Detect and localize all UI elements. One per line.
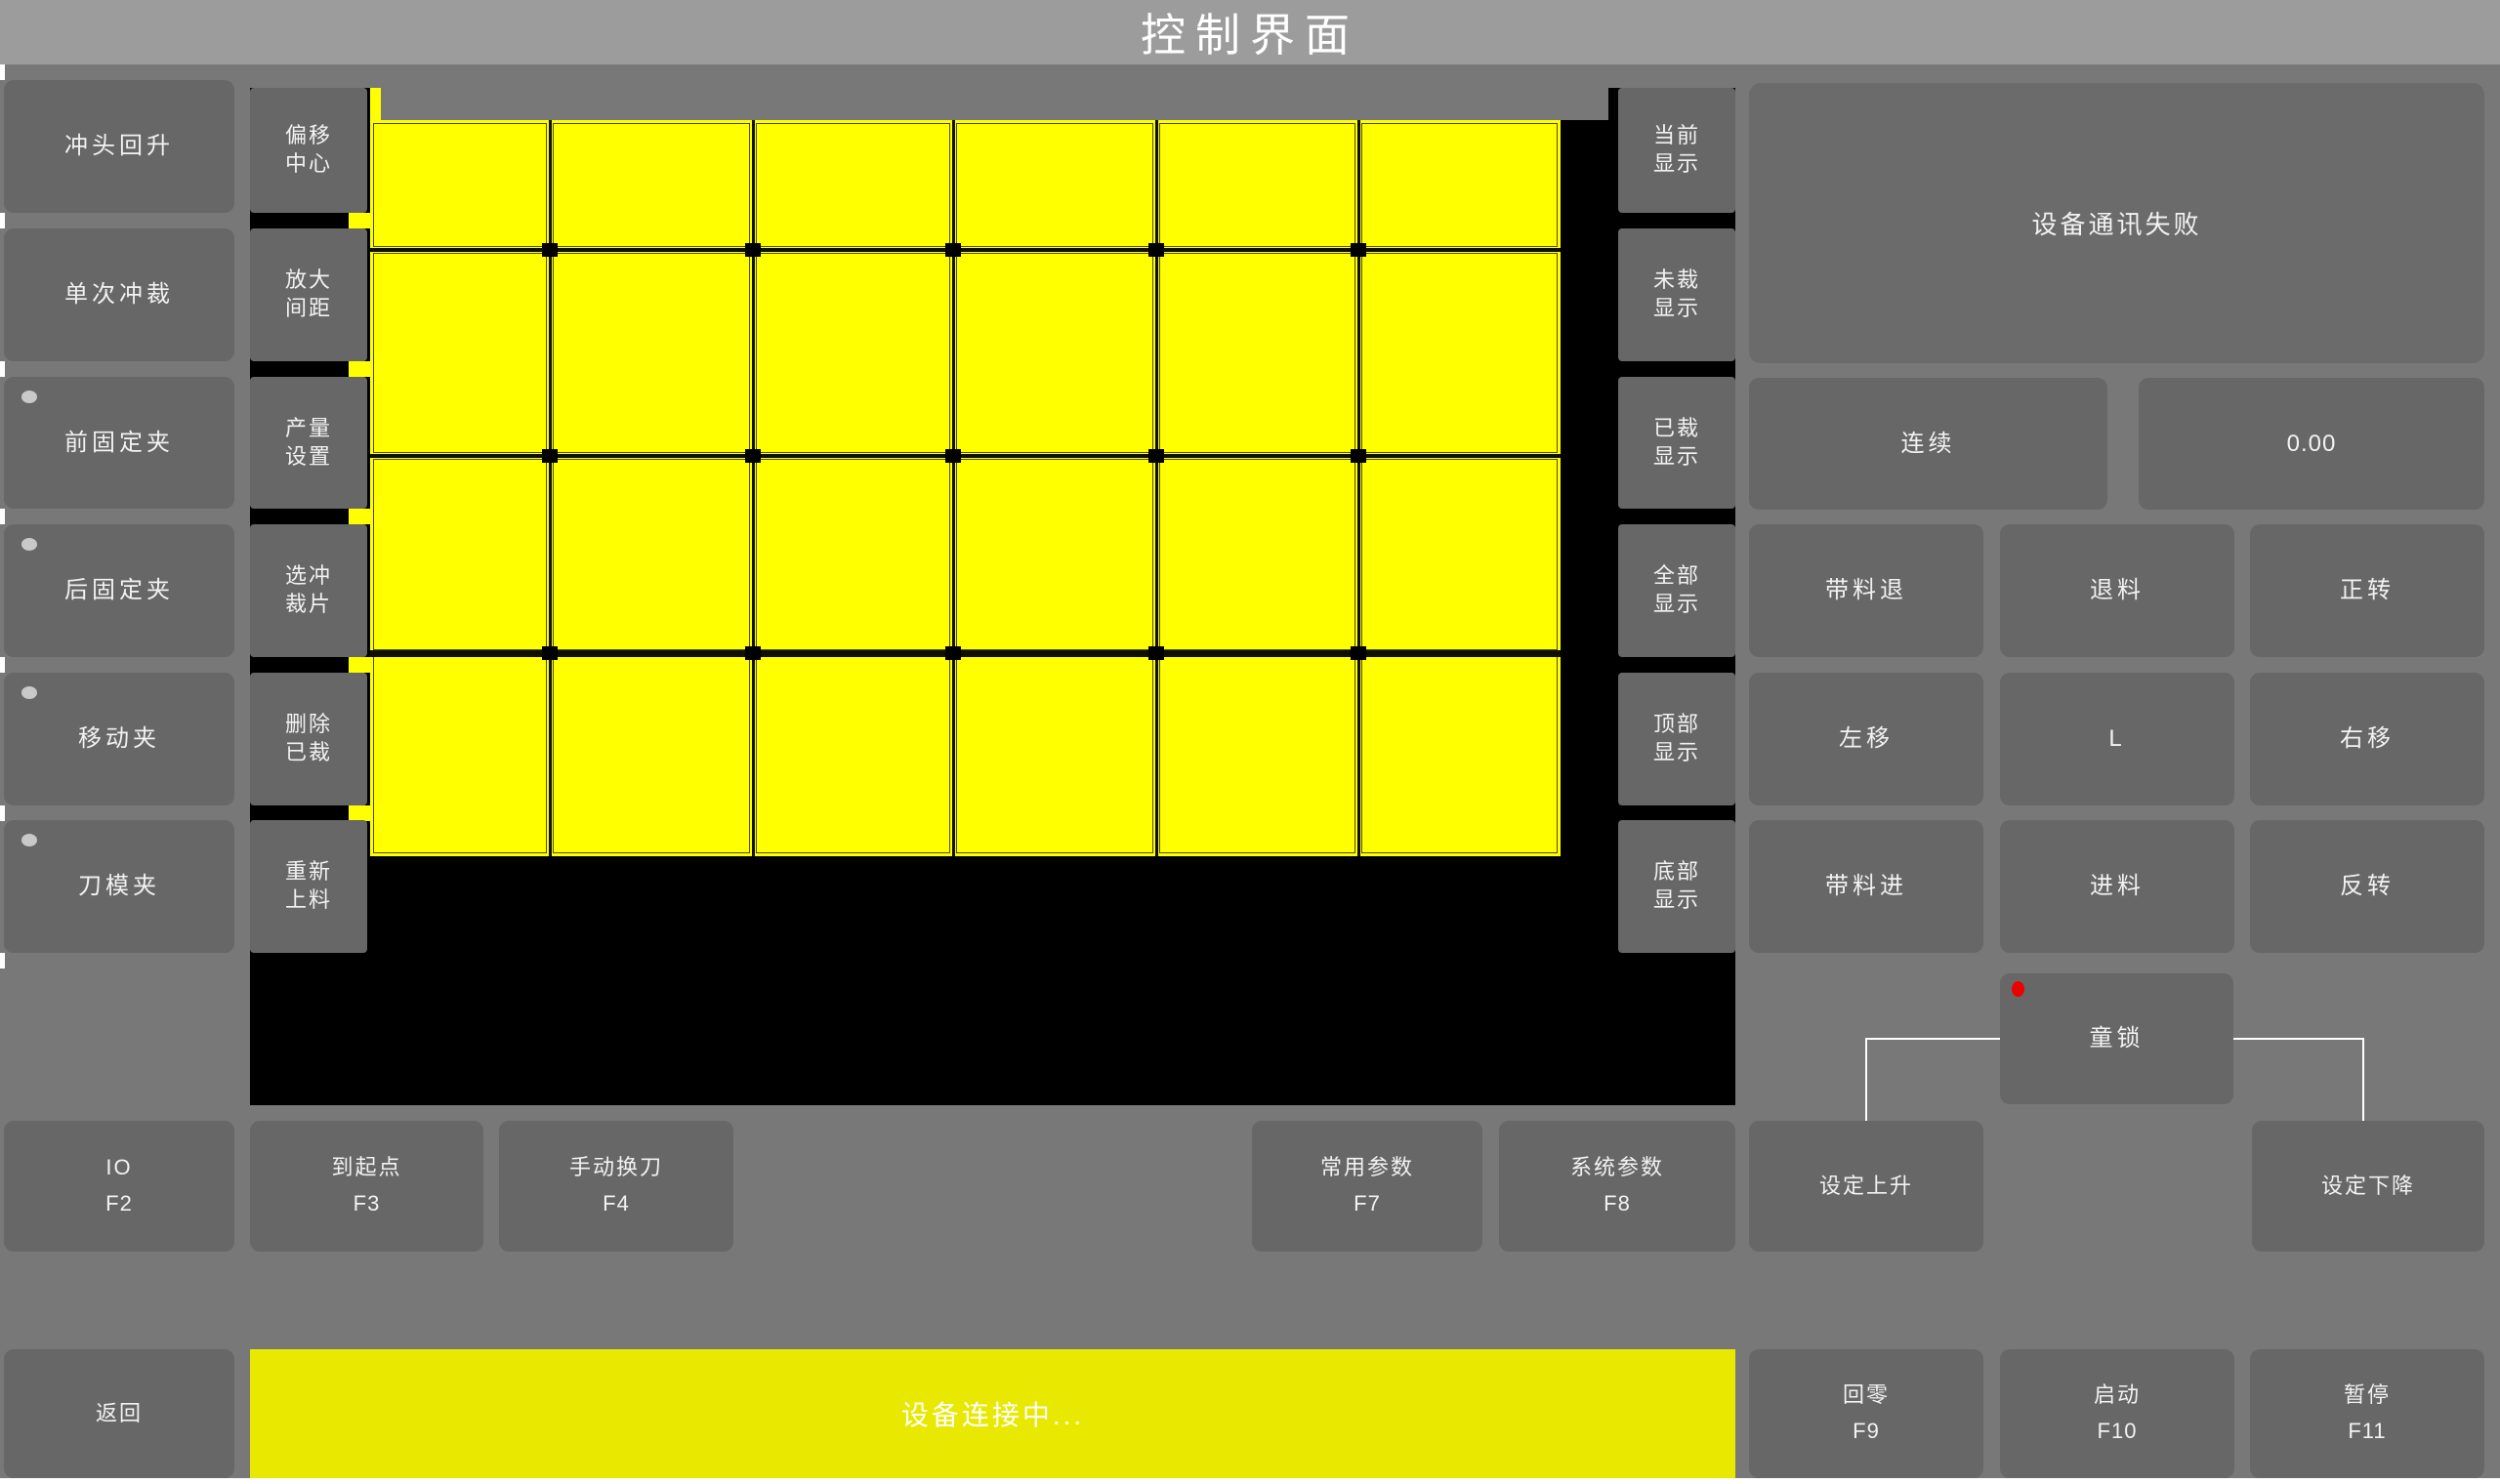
button-label: 显示 bbox=[1653, 295, 1700, 323]
show-all-button[interactable]: 全部显示 bbox=[1618, 524, 1735, 657]
child-lock-connector-line bbox=[2233, 1038, 2364, 1040]
reverse-rotate-button[interactable]: 反转 bbox=[2250, 820, 2484, 953]
sheet-piece[interactable] bbox=[1361, 459, 1558, 650]
piece-divider-vertical bbox=[549, 120, 552, 856]
child-lock-connector-line bbox=[1865, 1038, 1867, 1122]
button-label: 放大 bbox=[285, 267, 332, 295]
button-label: 显示 bbox=[1653, 591, 1700, 619]
left-edge-tick bbox=[0, 509, 5, 524]
button-label: 退料 bbox=[2090, 575, 2145, 605]
sheet-piece[interactable] bbox=[373, 123, 547, 247]
piece-divider-vertical bbox=[752, 120, 755, 856]
button-label: 带料退 bbox=[1825, 575, 1907, 605]
set-lower-button[interactable]: 设定下降 bbox=[2252, 1121, 2484, 1252]
control-screen: 控制界面 冲头回升 单次冲裁 前固定夹 后固定夹 移动夹 刀模夹 偏移中心 放大… bbox=[0, 0, 2500, 1484]
front-clamp-button[interactable]: 前固定夹 bbox=[4, 377, 234, 509]
divider-intersection-mark bbox=[1351, 646, 1366, 660]
divider-intersection-mark bbox=[745, 646, 761, 660]
left-edge-tick bbox=[0, 805, 5, 821]
status-text: 设备连接中... bbox=[901, 1394, 1084, 1433]
sheet-piece[interactable] bbox=[373, 656, 547, 853]
connection-status-bar: 设备连接中... bbox=[250, 1349, 1735, 1478]
device-message-text: 设备通讯失败 bbox=[2031, 205, 2201, 241]
page-title: 控制界面 bbox=[1141, 0, 1359, 64]
value-display[interactable]: 0.00 bbox=[2139, 378, 2484, 510]
left-edge-tick bbox=[0, 953, 5, 969]
pause-button[interactable]: 暂停F11 bbox=[2250, 1349, 2484, 1478]
io-button[interactable]: IOF2 bbox=[4, 1121, 234, 1252]
button-label: 前固定夹 bbox=[64, 428, 174, 458]
button-label: 重新 bbox=[285, 858, 332, 886]
fkey-label: F7 bbox=[1354, 1190, 1381, 1218]
eject-material-button[interactable]: 退料 bbox=[2000, 524, 2234, 657]
divider-intersection-mark bbox=[1148, 449, 1164, 463]
indicator-dot bbox=[21, 834, 37, 846]
sheet-piece[interactable] bbox=[373, 253, 547, 453]
sheet-piece[interactable] bbox=[956, 253, 1153, 453]
button-label: 裁片 bbox=[285, 591, 332, 619]
show-current-button[interactable]: 当前显示 bbox=[1618, 88, 1735, 213]
button-label: 单次冲裁 bbox=[64, 279, 174, 309]
common-params-button[interactable]: 常用参数F7 bbox=[1252, 1121, 1482, 1252]
move-right-button[interactable]: 右移 bbox=[2250, 673, 2484, 805]
left-edge-tick bbox=[0, 64, 5, 80]
single-punch-button[interactable]: 单次冲裁 bbox=[4, 228, 234, 361]
button-label: 系统参数 bbox=[1570, 1154, 1664, 1182]
sheet-left-tab bbox=[349, 361, 370, 377]
zoom-spacing-button[interactable]: 放大间距 bbox=[250, 228, 367, 361]
sheet-left-tab bbox=[349, 509, 370, 524]
sheet-piece[interactable] bbox=[756, 459, 950, 650]
sheet-left-tab bbox=[349, 657, 370, 673]
button-label: 间距 bbox=[285, 295, 332, 323]
fkey-label: F3 bbox=[354, 1190, 381, 1218]
button-label: 暂停 bbox=[2344, 1381, 2391, 1410]
button-label: 产量 bbox=[285, 415, 332, 443]
button-label: 手动换刀 bbox=[569, 1154, 663, 1182]
reload-material-button[interactable]: 重新上料 bbox=[250, 820, 367, 953]
left-edge-tick bbox=[0, 213, 5, 228]
button-label: 常用参数 bbox=[1320, 1154, 1414, 1182]
sheet-piece[interactable] bbox=[1361, 656, 1558, 853]
fkey-label: F9 bbox=[1853, 1418, 1880, 1446]
show-cut-button[interactable]: 已裁显示 bbox=[1618, 377, 1735, 509]
button-label: 偏移 bbox=[285, 122, 332, 150]
indicator-dot bbox=[21, 686, 37, 699]
left-edge-tick bbox=[0, 361, 5, 377]
button-label: 刀模夹 bbox=[78, 871, 160, 901]
sheet-piece[interactable] bbox=[373, 459, 547, 650]
button-label: 显示 bbox=[1653, 886, 1700, 915]
sheet-piece[interactable] bbox=[1159, 253, 1355, 453]
forward-rotate-button[interactable]: 正转 bbox=[2250, 524, 2484, 657]
button-label: 显示 bbox=[1653, 150, 1700, 179]
divider-intersection-mark bbox=[1148, 646, 1164, 660]
set-rise-button[interactable]: 设定上升 bbox=[1749, 1121, 1983, 1252]
feed-in-with-tape-button[interactable]: 带料进 bbox=[1749, 820, 1983, 953]
sheet-piece[interactable] bbox=[756, 656, 950, 853]
button-label: 正转 bbox=[2340, 575, 2395, 605]
die-clamp-button[interactable]: 刀模夹 bbox=[4, 820, 234, 953]
home-zero-button[interactable]: 回零F9 bbox=[1749, 1349, 1983, 1478]
bottom-edge-strip bbox=[0, 1478, 2500, 1484]
sheet-piece[interactable] bbox=[956, 459, 1153, 650]
sheet-piece[interactable] bbox=[1159, 656, 1355, 853]
move-left-button[interactable]: 左移 bbox=[1749, 673, 1983, 805]
sheet-left-tab bbox=[349, 213, 370, 228]
button-label: 到起点 bbox=[331, 1154, 401, 1182]
button-label: 顶部 bbox=[1653, 711, 1700, 739]
button-label: 设定下降 bbox=[2321, 1173, 2415, 1201]
button-label: 进料 bbox=[2090, 871, 2145, 901]
sheet-piece[interactable] bbox=[553, 656, 750, 853]
fkey-label: F4 bbox=[603, 1190, 630, 1218]
delete-cut-button[interactable]: 删除已裁 bbox=[250, 673, 367, 805]
divider-intersection-mark bbox=[945, 646, 961, 660]
sheet-piece[interactable] bbox=[1361, 253, 1558, 453]
l-button[interactable]: L bbox=[2000, 673, 2234, 805]
divider-intersection-mark bbox=[1351, 243, 1366, 257]
divider-intersection-mark bbox=[542, 646, 558, 660]
button-label: IO bbox=[105, 1154, 132, 1182]
divider-intersection-mark bbox=[1351, 449, 1366, 463]
value-text: 0.00 bbox=[2287, 429, 2337, 459]
button-label: 全部 bbox=[1653, 562, 1700, 591]
sheet-left-tab bbox=[349, 805, 370, 821]
indicator-dot bbox=[21, 538, 37, 551]
button-label: 当前 bbox=[1653, 122, 1700, 150]
button-label: 后固定夹 bbox=[64, 575, 174, 605]
button-label: 上料 bbox=[285, 886, 332, 915]
divider-intersection-mark bbox=[745, 449, 761, 463]
sheet-piece[interactable] bbox=[756, 253, 950, 453]
divider-intersection-mark bbox=[745, 243, 761, 257]
button-label: 已裁 bbox=[1653, 415, 1700, 443]
button-label: 删除 bbox=[285, 711, 332, 739]
button-label: L bbox=[2108, 723, 2125, 754]
left-edge-tick bbox=[0, 657, 5, 673]
divider-intersection-mark bbox=[542, 449, 558, 463]
sheet-top-notch bbox=[370, 88, 381, 120]
feed-back-with-tape-button[interactable]: 带料退 bbox=[1749, 524, 1983, 657]
button-label: 移动夹 bbox=[78, 723, 160, 754]
moving-clamp-button[interactable]: 移动夹 bbox=[4, 673, 234, 805]
fkey-label: F11 bbox=[2348, 1418, 2386, 1446]
button-label: 左移 bbox=[1839, 723, 1894, 754]
button-label: 带料进 bbox=[1825, 871, 1907, 901]
button-label: 底部 bbox=[1653, 858, 1700, 886]
button-label: 回零 bbox=[1843, 1381, 1890, 1410]
back-button[interactable]: 返回 bbox=[4, 1349, 234, 1478]
button-label: 未裁 bbox=[1653, 267, 1700, 295]
alert-dot bbox=[2012, 981, 2024, 997]
sheet-piece[interactable] bbox=[756, 123, 950, 247]
button-label: 反转 bbox=[2340, 871, 2395, 901]
fkey-label: F2 bbox=[105, 1190, 133, 1218]
canvas-top-strip bbox=[381, 88, 1608, 120]
manual-tool-change-button[interactable]: 手动换刀F4 bbox=[499, 1121, 733, 1252]
continuous-mode-button[interactable]: 连续 bbox=[1749, 378, 2107, 510]
title-bar: 控制界面 bbox=[0, 0, 2500, 64]
button-label: 设置 bbox=[285, 443, 332, 472]
sheet-piece[interactable] bbox=[553, 123, 750, 247]
button-label: 返回 bbox=[96, 1400, 143, 1428]
fkey-label: F8 bbox=[1604, 1190, 1631, 1218]
button-label: 显示 bbox=[1653, 443, 1700, 472]
start-button[interactable]: 启动F10 bbox=[2000, 1349, 2234, 1478]
sheet-piece[interactable] bbox=[553, 253, 750, 453]
piece-divider-vertical bbox=[1357, 120, 1360, 856]
divider-intersection-mark bbox=[1148, 243, 1164, 257]
button-label: 已裁 bbox=[285, 739, 332, 767]
child-lock-connector-line bbox=[2362, 1038, 2364, 1122]
sheet-piece[interactable] bbox=[1159, 459, 1355, 650]
divider-intersection-mark bbox=[945, 243, 961, 257]
sheet-piece[interactable] bbox=[956, 123, 1153, 247]
yield-settings-button[interactable]: 产量设置 bbox=[250, 377, 367, 509]
button-label: 童锁 bbox=[2090, 1023, 2145, 1053]
offset-center-button[interactable]: 偏移中心 bbox=[250, 88, 367, 213]
child-lock-connector-line bbox=[1865, 1038, 2000, 1040]
button-label: 中心 bbox=[285, 150, 332, 179]
sheet-piece[interactable] bbox=[956, 656, 1153, 853]
select-piece-button[interactable]: 选冲裁片 bbox=[250, 524, 367, 657]
button-label: 右移 bbox=[2340, 723, 2395, 754]
device-message-box: 设备通讯失败 bbox=[1749, 83, 2484, 363]
indicator-dot bbox=[21, 391, 37, 403]
piece-divider-vertical bbox=[1155, 120, 1158, 856]
fkey-label: F10 bbox=[2098, 1418, 2138, 1446]
divider-intersection-mark bbox=[542, 243, 558, 257]
rear-clamp-button[interactable]: 后固定夹 bbox=[4, 524, 234, 657]
button-label: 启动 bbox=[2094, 1381, 2141, 1410]
sheet-piece[interactable] bbox=[553, 459, 750, 650]
button-label: 显示 bbox=[1653, 739, 1700, 767]
sheet-piece[interactable] bbox=[1159, 123, 1355, 247]
button-label: 连续 bbox=[1901, 429, 1956, 459]
system-params-button[interactable]: 系统参数F8 bbox=[1499, 1121, 1735, 1252]
show-bottom-button[interactable]: 底部显示 bbox=[1618, 820, 1735, 953]
button-label: 冲头回升 bbox=[64, 131, 174, 161]
sheet-piece[interactable] bbox=[1361, 123, 1558, 247]
piece-divider-vertical bbox=[952, 120, 955, 856]
feed-material-button[interactable]: 进料 bbox=[2000, 820, 2234, 953]
child-lock-button[interactable]: 童锁 bbox=[2000, 973, 2233, 1104]
show-uncut-button[interactable]: 未裁显示 bbox=[1618, 228, 1735, 361]
button-label: 设定上升 bbox=[1819, 1173, 1913, 1201]
button-label: 选冲 bbox=[285, 562, 332, 591]
divider-intersection-mark bbox=[945, 449, 961, 463]
show-top-button[interactable]: 顶部显示 bbox=[1618, 673, 1735, 805]
punch-raise-button[interactable]: 冲头回升 bbox=[4, 80, 234, 213]
go-to-origin-button[interactable]: 到起点F3 bbox=[250, 1121, 483, 1252]
